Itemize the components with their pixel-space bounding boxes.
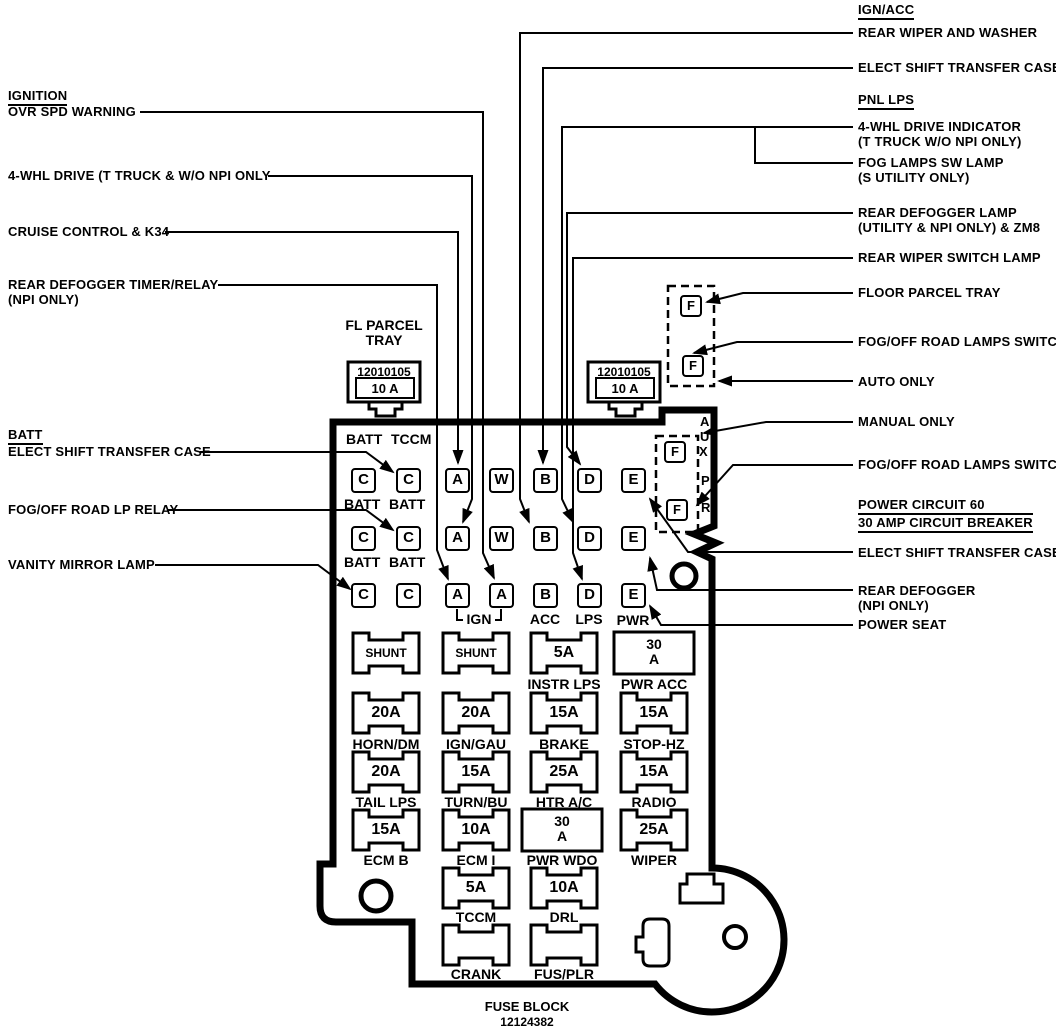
- fuse-block-diagram: IGNITION OVR SPD WARNING 4-WHL DRIVE (T …: [0, 0, 1056, 1032]
- fuse-amp: 25A: [621, 821, 687, 839]
- terminal-row2-a: A: [445, 526, 470, 551]
- relay-left-amp: 10 A: [356, 381, 414, 397]
- fuse-amp: 15A: [621, 704, 687, 722]
- terminal-f-aux-1: F: [664, 441, 686, 463]
- fuse-label: TCCM: [430, 910, 522, 925]
- aux-letter-u: U: [700, 430, 709, 444]
- terminal-f-fog: F: [682, 355, 704, 377]
- fuse-amp: 5A: [531, 644, 597, 662]
- corner-header-batt: BATT: [346, 431, 382, 447]
- fuse-amp: 15A: [353, 821, 419, 839]
- fuse-label: RADIO: [608, 795, 700, 810]
- lobe-connector: [636, 919, 669, 966]
- aux-letter-p: P: [701, 474, 710, 488]
- row3-caption-lps: LPS: [569, 611, 609, 627]
- fuse-amp: 15A: [531, 704, 597, 722]
- row1-caption-batt-1: BATT: [344, 496, 380, 512]
- fuse-label: ECM I: [430, 853, 522, 868]
- row1-caption-batt-2: BATT: [389, 496, 425, 512]
- fuse-label: DRL: [518, 910, 610, 925]
- fuse-amp: 25A: [531, 763, 597, 781]
- terminal-row1-c2: C: [396, 468, 421, 493]
- row2-caption-batt-1: BATT: [344, 554, 380, 570]
- label-rear-defogger-lamp: REAR DEFOGGER LAMP(UTILITY & NPI ONLY) &…: [858, 205, 1040, 235]
- fuse-amp: 20A: [353, 763, 419, 781]
- lobe-tab: [680, 874, 723, 903]
- label-elect-shift-lower: ELECT SHIFT TRANSFER CASE: [858, 545, 1056, 560]
- label-pnl-lps: PNL LPS: [858, 92, 914, 110]
- fuse-label: FUS/PLR: [518, 967, 610, 982]
- terminal-row3-d: D: [577, 583, 602, 608]
- mount-hole-lobe: [724, 926, 746, 948]
- aux-letter-a: A: [700, 415, 709, 429]
- fuse-label: IGN/GAU: [430, 737, 522, 752]
- relay-right-part: 12010105: [590, 364, 658, 380]
- terminal-row3-a1: A: [445, 583, 470, 608]
- terminal-row1-b: B: [533, 468, 558, 493]
- mount-hole-mid: [672, 564, 696, 588]
- terminal-row2-w: W: [489, 526, 514, 551]
- terminal-row1-c1: C: [351, 468, 376, 493]
- fuse-label: STOP-HZ: [608, 737, 700, 752]
- fuse-amp: 10A: [443, 821, 509, 839]
- terminal-row2-c1: C: [351, 526, 376, 551]
- terminal-row2-c2: C: [396, 526, 421, 551]
- fuse-amp: 20A: [353, 704, 419, 722]
- terminal-row2-d: D: [577, 526, 602, 551]
- terminal-row1-e: E: [621, 468, 646, 493]
- fuse-label: PWR WDO: [516, 853, 608, 868]
- label-rear-defogger: REAR DEFOGGER(NPI ONLY): [858, 583, 975, 613]
- fuse-amp: 5A: [443, 879, 509, 897]
- terminal-f-aux-2: F: [666, 499, 688, 521]
- row2-caption-batt-2: BATT: [389, 554, 425, 570]
- fuse-label: CRANK: [430, 967, 522, 982]
- label-4whl-indicator: 4-WHL DRIVE INDICATOR(T TRUCK W/O NPI ON…: [858, 119, 1022, 149]
- label-cruise-control: CRUISE CONTROL & K34: [8, 224, 169, 239]
- relay-left-part: 12010105: [350, 364, 418, 380]
- label-fog-off-road-switch-2: FOG/OFF ROAD LAMPS SWITCH: [858, 457, 1056, 472]
- fuse-label: TURN/BU: [430, 795, 522, 810]
- label-fog-lamps-sw: FOG LAMPS SW LAMP(S UTILITY ONLY): [858, 155, 1004, 185]
- terminal-row1-a: A: [445, 468, 470, 493]
- label-ovr-spd-warning: OVR SPD WARNING: [8, 104, 136, 119]
- relay-caption-line2: TRAY: [334, 332, 434, 348]
- row3-caption-acc: ACC: [525, 611, 565, 627]
- label-auto-only: AUTO ONLY: [858, 374, 935, 389]
- fuse-label: HTR A/C: [518, 795, 610, 810]
- corner-header-tccm: TCCM: [391, 431, 431, 447]
- terminal-row1-w: W: [489, 468, 514, 493]
- terminal-row3-c1: C: [351, 583, 376, 608]
- fuse-label: PWR ACC: [608, 677, 700, 692]
- relay-right-amp: 10 A: [596, 381, 654, 397]
- footer-part-number: 12124382: [457, 1014, 597, 1030]
- label-fog-off-lp-relay: FOG/OFF ROAD LP RELAY: [8, 502, 178, 517]
- label-batt: BATT: [8, 427, 43, 445]
- relay-caption-line1: FL PARCEL: [334, 317, 434, 333]
- row3-caption-ign: IGN: [459, 611, 499, 627]
- footer-title: FUSE BLOCK: [457, 999, 597, 1015]
- aux-letter-x: X: [699, 445, 708, 459]
- fuse-amp: 20A: [443, 704, 509, 722]
- fuse-amp: SHUNT: [443, 646, 509, 660]
- label-fog-off-road-switch-1: FOG/OFF ROAD LAMPS SWITCH: [858, 334, 1056, 349]
- label-elect-shift-left: ELECT SHIFT TRANSFER CASE: [8, 444, 211, 459]
- fuse-label: WIPER: [608, 853, 700, 868]
- terminal-f-parcel: F: [680, 295, 702, 317]
- row3-caption-pwr: PWR: [611, 612, 655, 628]
- label-power-circuit-60: POWER CIRCUIT 6030 AMP CIRCUIT BREAKER: [858, 497, 1033, 533]
- fuse-label: BRAKE: [518, 737, 610, 752]
- fuse-label: TAIL LPS: [340, 795, 432, 810]
- label-ign-acc: IGN/ACC: [858, 2, 914, 20]
- label-elect-shift-top: ELECT SHIFT TRANSFER CASE: [858, 60, 1056, 75]
- fuse-amp: 15A: [621, 763, 687, 781]
- fuse-amp: 10A: [531, 879, 597, 897]
- label-floor-parcel-tray: FLOOR PARCEL TRAY: [858, 285, 1001, 300]
- label-rear-wiper-washer: REAR WIPER AND WASHER: [858, 25, 1037, 40]
- terminal-row3-b: B: [533, 583, 558, 608]
- fuse-amp: SHUNT: [353, 646, 419, 660]
- fuse-amp: 15A: [443, 763, 509, 781]
- terminal-row3-a2: A: [489, 583, 514, 608]
- fuse-amp: 30A: [614, 637, 694, 667]
- fuse-label: ECM B: [340, 853, 432, 868]
- label-power-seat: POWER SEAT: [858, 617, 946, 632]
- fuse-label: INSTR LPS: [518, 677, 610, 692]
- terminal-row2-b: B: [533, 526, 558, 551]
- terminal-row3-c2: C: [396, 583, 421, 608]
- label-rear-defogger-timer: REAR DEFOGGER TIMER/RELAY(NPI ONLY): [8, 277, 218, 307]
- label-vanity-mirror-lamp: VANITY MIRROR LAMP: [8, 557, 155, 572]
- mount-hole-left: [361, 881, 391, 911]
- label-rear-wiper-switch-lamp: REAR WIPER SWITCH LAMP: [858, 250, 1041, 265]
- terminal-row2-e: E: [621, 526, 646, 551]
- aux-letter-r: R: [701, 501, 710, 515]
- terminal-row1-d: D: [577, 468, 602, 493]
- fuse-label: HORN/DM: [340, 737, 432, 752]
- fuse-amp: 30A: [522, 814, 602, 844]
- label-4whl-drive: 4-WHL DRIVE (T TRUCK & W/O NPI ONLY: [8, 168, 271, 183]
- terminal-row3-e: E: [621, 583, 646, 608]
- label-manual-only: MANUAL ONLY: [858, 414, 955, 429]
